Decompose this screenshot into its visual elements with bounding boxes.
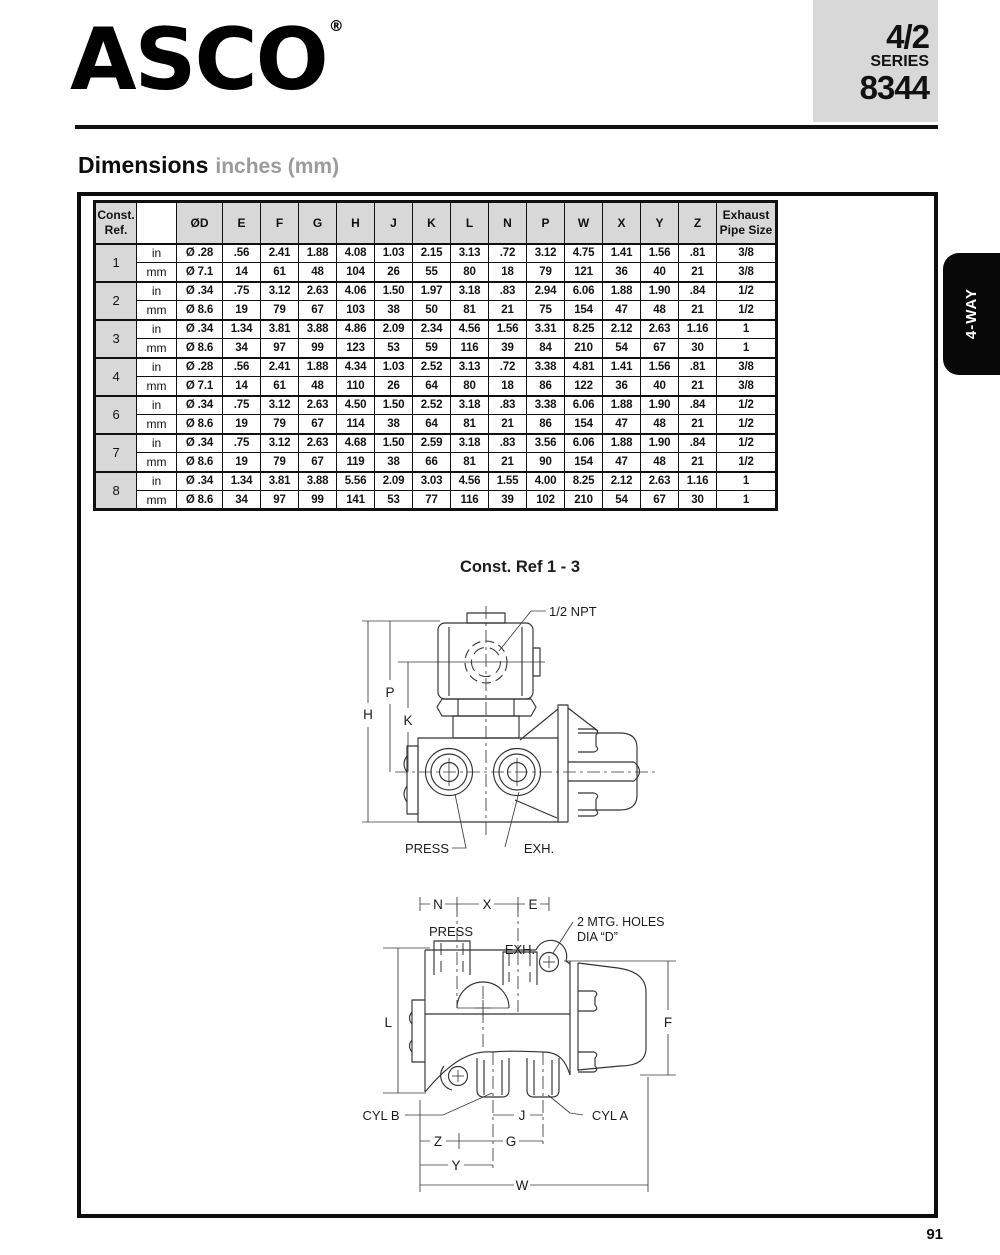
value-cell: 2.09 [375,320,413,339]
value-cell: 67 [299,301,337,320]
value-cell: 2.52 [413,396,451,415]
top-view-diagram: N X E PRESS EXH. 2 MTG. HOLES DIA “D” L … [352,888,696,1200]
value-cell: 2.63 [641,472,679,491]
value-cell: 2.12 [603,320,641,339]
diagram2-leader-lines [405,922,583,1115]
value-cell: 84 [527,339,565,358]
value-cell: 30 [679,339,717,358]
value-cell: 2.52 [413,358,451,377]
value-cell: 97 [261,339,299,358]
value-cell: 75 [527,301,565,320]
value-cell: 34 [223,491,261,510]
series-number-label: 8344 [813,71,929,104]
value-cell: 8.25 [565,472,603,491]
unit-cell: in [137,472,177,491]
value-cell: 3.38 [527,358,565,377]
value-cell: .72 [489,244,527,263]
value-cell: 1.50 [375,282,413,301]
value-cell: 4.56 [451,472,489,491]
value-cell: 21 [489,415,527,434]
value-cell: 1.56 [641,244,679,263]
dim-label-z: Z [434,1134,442,1149]
value-cell: 14 [223,377,261,396]
valve-type-label: 4/2 [813,20,929,53]
section-heading: Dimensionsinches (mm) [78,152,339,179]
value-cell: 1.88 [603,396,641,415]
value-cell: 77 [413,491,451,510]
dim-label-e: E [528,897,537,912]
value-cell: 210 [565,491,603,510]
value-cell: 30 [679,491,717,510]
value-cell: 38 [375,301,413,320]
value-cell: 154 [565,415,603,434]
header-col-N: N [489,202,527,244]
header-col-ØD: ØD [177,202,223,244]
dim-label-x: X [482,897,491,912]
value-cell: 3.56 [527,434,565,453]
value-cell: 61 [261,377,299,396]
value-cell: .56 [223,358,261,377]
value-cell: 123 [337,339,375,358]
value-cell: 6.06 [565,282,603,301]
value-cell: 114 [337,415,375,434]
value-cell: 2.41 [261,244,299,263]
value-cell: 1.97 [413,282,451,301]
value-cell: 1.90 [641,434,679,453]
value-cell: 40 [641,377,679,396]
table-row: mmØ 7.114614810426558018791213640213/8 [95,263,777,282]
value-cell: 26 [375,377,413,396]
value-cell: .56 [223,244,261,263]
mtg-holes-note-line2: DIA “D” [577,930,618,944]
value-cell: 90 [527,453,565,472]
value-cell: Ø .34 [177,396,223,415]
dim-label-h: H [363,707,373,722]
value-cell: .75 [223,282,261,301]
table-row: 7inØ .34.753.122.634.681.502.593.18.833.… [95,434,777,453]
value-cell: 67 [641,339,679,358]
value-cell: 19 [223,453,261,472]
value-cell: 36 [603,263,641,282]
dimensions-table: Const. Ref.ØDEFGHJKLNPWXYZExhaust Pipe S… [93,200,778,511]
exhaust-port-label-top: EXH. [505,942,535,957]
value-cell: 3.81 [261,320,299,339]
value-cell: 47 [603,415,641,434]
value-cell: 1.50 [375,396,413,415]
side-tab-4way: 4-WAY [943,253,1000,375]
exhaust-cell: 1/2 [717,396,777,415]
value-cell: 2.41 [261,358,299,377]
value-cell: 64 [413,377,451,396]
press-port-label: PRESS [405,841,449,856]
value-cell: 48 [641,415,679,434]
value-cell: 119 [337,453,375,472]
value-cell: 50 [413,301,451,320]
ref-cell: 3 [95,320,137,358]
value-cell: 80 [451,263,489,282]
value-cell: 18 [489,263,527,282]
value-cell: 14 [223,263,261,282]
value-cell: 154 [565,301,603,320]
value-cell: 21 [679,415,717,434]
value-cell: 48 [641,301,679,320]
unit-cell: mm [137,377,177,396]
value-cell: 3.88 [299,320,337,339]
header-col-J: J [375,202,413,244]
dim-label-g: G [506,1134,517,1149]
exhaust-cell: 1 [717,491,777,510]
exhaust-cell: 3/8 [717,244,777,263]
value-cell: 4.08 [337,244,375,263]
value-cell: 2.63 [299,396,337,415]
dim-label-k: K [403,713,412,728]
table-row: mmØ 8.619796711438648121861544748211/2 [95,415,777,434]
value-cell: 3.18 [451,282,489,301]
exhaust-cell: 1 [717,320,777,339]
value-cell: Ø 7.1 [177,377,223,396]
valve-top-view-drawing [410,940,647,1097]
side-tab-label: 4-WAY [963,288,980,339]
header-unit-blank [137,202,177,244]
cyl-b-label: CYL B [362,1108,399,1123]
series-box: 4/2 SERIES 8344 [813,0,938,122]
exhaust-cell: 1/2 [717,415,777,434]
value-cell: 4.00 [527,472,565,491]
unit-cell: mm [137,491,177,510]
value-cell: 4.50 [337,396,375,415]
value-cell: 54 [603,491,641,510]
value-cell: 59 [413,339,451,358]
value-cell: 38 [375,453,413,472]
value-cell: 2.59 [413,434,451,453]
value-cell: .83 [489,396,527,415]
value-cell: 67 [641,491,679,510]
value-cell: .84 [679,282,717,301]
table-head: Const. Ref.ØDEFGHJKLNPWXYZExhaust Pipe S… [95,202,777,244]
header-col-K: K [413,202,451,244]
value-cell: 81 [451,415,489,434]
value-cell: .75 [223,434,261,453]
header-const-ref: Const. Ref. [95,202,137,244]
brand-logo: ASCO® [70,10,342,110]
value-cell: 4.75 [565,244,603,263]
value-cell: 4.81 [565,358,603,377]
value-cell: 3.13 [451,358,489,377]
dim-label-p: P [385,685,394,700]
value-cell: 79 [261,301,299,320]
exhaust-cell: 1/2 [717,301,777,320]
value-cell: 1.50 [375,434,413,453]
unit-cell: in [137,282,177,301]
value-cell: 103 [337,301,375,320]
value-cell: 1.90 [641,282,679,301]
value-cell: 67 [299,453,337,472]
value-cell: 86 [527,415,565,434]
value-cell: 67 [299,415,337,434]
value-cell: 34 [223,339,261,358]
registered-trademark-symbol: ® [329,17,344,35]
value-cell: 2.63 [641,320,679,339]
header-col-G: G [299,202,337,244]
value-cell: 97 [261,491,299,510]
value-cell: 141 [337,491,375,510]
value-cell: 48 [641,453,679,472]
header-col-Z: Z [679,202,717,244]
table-body: 1inØ .28.562.411.884.081.032.153.13.723.… [95,244,777,510]
value-cell: 61 [261,263,299,282]
value-cell: 36 [603,377,641,396]
value-cell: 5.56 [337,472,375,491]
value-cell: 81 [451,301,489,320]
value-cell: 104 [337,263,375,282]
value-cell: Ø .28 [177,358,223,377]
value-cell: 6.06 [565,396,603,415]
value-cell: 2.63 [299,434,337,453]
header-col-E: E [223,202,261,244]
value-cell: .72 [489,358,527,377]
value-cell: 121 [565,263,603,282]
value-cell: 79 [261,453,299,472]
table-row: mmØ 7.114614811026648018861223640213/8 [95,377,777,396]
value-cell: 1.90 [641,396,679,415]
diagram1-leader-lines [452,611,546,848]
header-exhaust: Exhaust Pipe Size [717,202,777,244]
value-cell: Ø .34 [177,434,223,453]
value-cell: 53 [375,491,413,510]
value-cell: 64 [413,415,451,434]
dim-label-n: N [433,897,443,912]
value-cell: 1.88 [299,244,337,263]
dim-label-j: J [519,1108,526,1123]
value-cell: 1.41 [603,358,641,377]
value-cell: 4.56 [451,320,489,339]
value-cell: 3.18 [451,434,489,453]
unit-cell: in [137,358,177,377]
page-number: 91 [926,1226,943,1243]
exhaust-cell: 3/8 [717,358,777,377]
value-cell: Ø 8.6 [177,301,223,320]
npt-port-label: 1/2 NPT [549,604,597,619]
value-cell: 3.81 [261,472,299,491]
header-divider-rule [75,125,938,129]
unit-cell: mm [137,263,177,282]
table-row: 3inØ .341.343.813.884.862.092.344.561.56… [95,320,777,339]
value-cell: 3.31 [527,320,565,339]
mtg-holes-note-line1: 2 MTG. HOLES [577,915,665,929]
value-cell: 99 [299,339,337,358]
section-subtitle: inches (mm) [215,155,339,178]
value-cell: 1.34 [223,320,261,339]
value-cell: 3.88 [299,472,337,491]
ref-cell: 8 [95,472,137,510]
value-cell: 86 [527,377,565,396]
value-cell: 47 [603,453,641,472]
unit-cell: in [137,396,177,415]
value-cell: .83 [489,282,527,301]
header-col-L: L [451,202,489,244]
value-cell: 26 [375,263,413,282]
value-cell: 48 [299,263,337,282]
value-cell: Ø .34 [177,320,223,339]
value-cell: Ø 8.6 [177,453,223,472]
dim-label-l: L [384,1015,392,1030]
value-cell: 122 [565,377,603,396]
value-cell: 48 [299,377,337,396]
value-cell: 21 [489,453,527,472]
unit-cell: mm [137,301,177,320]
value-cell: 3.38 [527,396,565,415]
table-row: mmØ 8.6349799123535911639842105467301 [95,339,777,358]
value-cell: Ø 8.6 [177,491,223,510]
diagram1-title: Const. Ref 1 - 3 [460,558,580,576]
ref-cell: 7 [95,434,137,472]
value-cell: 1.16 [679,472,717,491]
value-cell: Ø .34 [177,282,223,301]
value-cell: 19 [223,301,261,320]
exhaust-cell: 1 [717,339,777,358]
value-cell: 1.56 [489,320,527,339]
value-cell: 21 [679,377,717,396]
table-row: 8inØ .341.343.813.885.562.093.034.561.55… [95,472,777,491]
value-cell: 4.06 [337,282,375,301]
cyl-a-label: CYL A [592,1108,629,1123]
value-cell: 4.68 [337,434,375,453]
value-cell: 39 [489,491,527,510]
value-cell: 1.88 [603,282,641,301]
value-cell: 21 [489,301,527,320]
value-cell: .83 [489,434,527,453]
value-cell: .75 [223,396,261,415]
value-cell: .84 [679,396,717,415]
table-row: 6inØ .34.753.122.634.501.502.523.18.833.… [95,396,777,415]
value-cell: 38 [375,415,413,434]
unit-cell: mm [137,339,177,358]
value-cell: 3.12 [261,282,299,301]
value-cell: 1.41 [603,244,641,263]
dim-label-f: F [664,1015,672,1030]
value-cell: .81 [679,358,717,377]
value-cell: 2.94 [527,282,565,301]
exhaust-cell: 1/2 [717,282,777,301]
unit-cell: in [137,320,177,339]
value-cell: 1.34 [223,472,261,491]
exhaust-cell: 3/8 [717,377,777,396]
value-cell: 1.16 [679,320,717,339]
exhaust-cell: 3/8 [717,263,777,282]
value-cell: 21 [679,301,717,320]
value-cell: 3.12 [261,434,299,453]
value-cell: 1.03 [375,358,413,377]
value-cell: 4.86 [337,320,375,339]
value-cell: 110 [337,377,375,396]
value-cell: 53 [375,339,413,358]
ref-cell: 6 [95,396,137,434]
exhaust-port-label: EXH. [524,841,554,856]
table-row: 1inØ .28.562.411.884.081.032.153.13.723.… [95,244,777,263]
value-cell: Ø 8.6 [177,415,223,434]
value-cell: 79 [527,263,565,282]
value-cell: 1.88 [299,358,337,377]
header-col-P: P [527,202,565,244]
value-cell: 8.25 [565,320,603,339]
table-row: mmØ 8.619796711938668121901544748211/2 [95,453,777,472]
value-cell: 18 [489,377,527,396]
value-cell: 2.09 [375,472,413,491]
ref-cell: 4 [95,358,137,396]
value-cell: 39 [489,339,527,358]
value-cell: Ø .28 [177,244,223,263]
value-cell: 4.34 [337,358,375,377]
value-cell: 99 [299,491,337,510]
value-cell: 40 [641,263,679,282]
value-cell: 1.88 [603,434,641,453]
value-cell: Ø .34 [177,472,223,491]
header-col-H: H [337,202,375,244]
value-cell: 6.06 [565,434,603,453]
value-cell: 21 [679,453,717,472]
unit-cell: mm [137,453,177,472]
table-row: 4inØ .28.562.411.884.341.032.523.13.723.… [95,358,777,377]
section-title: Dimensions [78,152,208,178]
table-row: mmØ 8.619796710338508121751544748211/2 [95,301,777,320]
ref-cell: 1 [95,244,137,282]
value-cell: 210 [565,339,603,358]
header-col-Y: Y [641,202,679,244]
value-cell: 3.13 [451,244,489,263]
value-cell: 54 [603,339,641,358]
value-cell: 19 [223,415,261,434]
valve-side-view-drawing [404,613,640,822]
exhaust-cell: 1/2 [717,434,777,453]
unit-cell: in [137,244,177,263]
value-cell: 3.03 [413,472,451,491]
value-cell: 102 [527,491,565,510]
value-cell: 2.15 [413,244,451,263]
table-row: 2inØ .34.753.122.634.061.501.973.18.832.… [95,282,777,301]
unit-cell: in [137,434,177,453]
value-cell: 21 [679,263,717,282]
exhaust-cell: 1 [717,472,777,491]
value-cell: 2.63 [299,282,337,301]
value-cell: 154 [565,453,603,472]
brand-logo-text: ASCO [70,10,327,110]
value-cell: 79 [261,415,299,434]
value-cell: 116 [451,339,489,358]
value-cell: 80 [451,377,489,396]
table-row: mmØ 8.63497991415377116391022105467301 [95,491,777,510]
header-col-F: F [261,202,299,244]
value-cell: 47 [603,301,641,320]
value-cell: Ø 8.6 [177,339,223,358]
value-cell: 1.56 [641,358,679,377]
ref-cell: 2 [95,282,137,320]
value-cell: 3.18 [451,396,489,415]
dim-label-y: Y [451,1158,460,1173]
value-cell: 55 [413,263,451,282]
dim-label-w: W [516,1178,529,1193]
value-cell: 66 [413,453,451,472]
value-cell: 1.03 [375,244,413,263]
value-cell: .81 [679,244,717,263]
header-col-X: X [603,202,641,244]
value-cell: 2.34 [413,320,451,339]
unit-cell: mm [137,415,177,434]
value-cell: 81 [451,453,489,472]
press-port-label-top: PRESS [429,924,473,939]
value-cell: 116 [451,491,489,510]
side-view-diagram: Const. Ref 1 - 3 [350,548,680,864]
header-col-W: W [565,202,603,244]
